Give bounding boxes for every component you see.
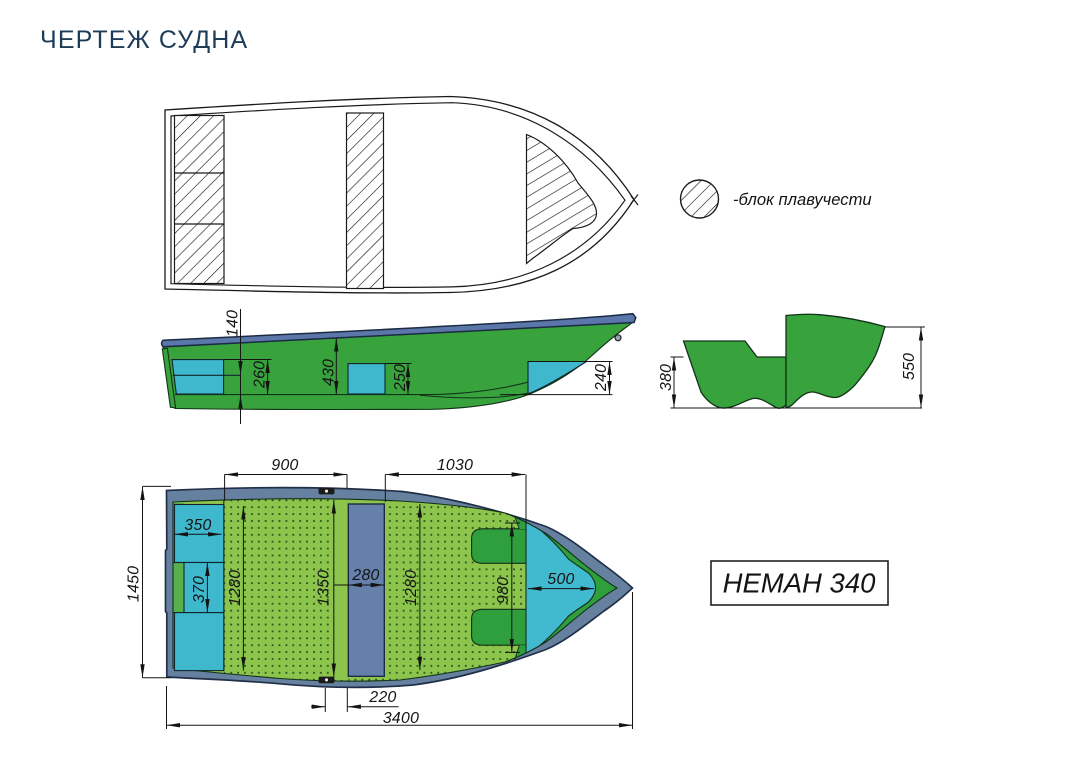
svg-text:-блок плавучести: -блок плавучести: [733, 190, 872, 209]
svg-text:1280: 1280: [403, 570, 420, 606]
svg-text:370: 370: [191, 576, 208, 603]
svg-text:380: 380: [658, 364, 675, 391]
svg-text:250: 250: [392, 364, 409, 392]
svg-text:980: 980: [495, 577, 512, 604]
svg-text:350: 350: [184, 517, 211, 534]
svg-text:1280: 1280: [227, 570, 244, 606]
svg-text:1350: 1350: [316, 570, 333, 606]
svg-text:140: 140: [225, 310, 242, 337]
svg-text:550: 550: [901, 353, 918, 380]
svg-text:500: 500: [547, 571, 574, 588]
svg-text:1450: 1450: [126, 566, 143, 602]
svg-text:1030: 1030: [437, 457, 473, 474]
svg-text:НЕМАН 340: НЕМАН 340: [723, 568, 877, 599]
svg-text:280: 280: [351, 567, 379, 584]
svg-text:220: 220: [368, 689, 396, 706]
svg-text:260: 260: [252, 361, 269, 389]
svg-text:900: 900: [271, 457, 298, 474]
svg-text:240: 240: [593, 364, 610, 392]
svg-text:3400: 3400: [383, 710, 419, 727]
svg-text:430: 430: [321, 359, 338, 386]
